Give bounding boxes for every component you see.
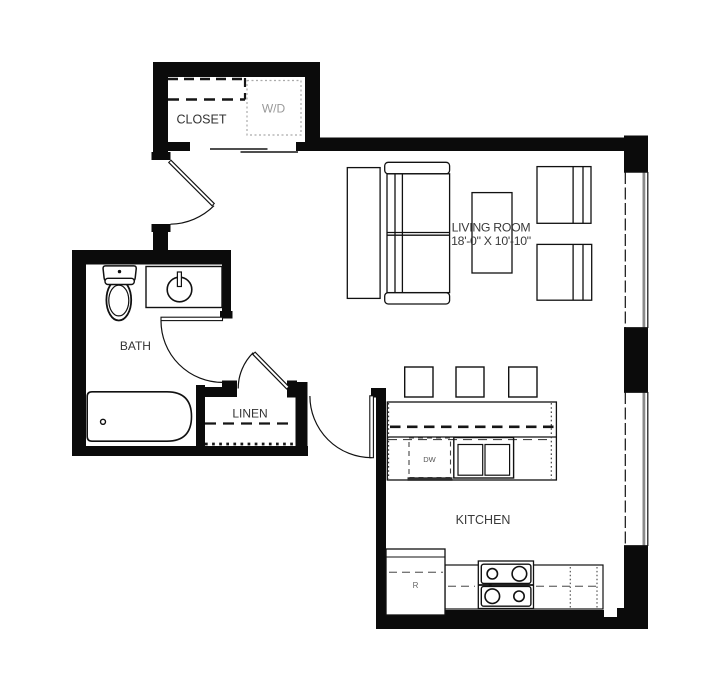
svg-text:KITCHEN: KITCHEN (456, 513, 511, 527)
svg-text:W/D: W/D (262, 102, 286, 116)
svg-text:CLOSET: CLOSET (176, 113, 226, 127)
svg-text:BATH: BATH (120, 339, 151, 353)
svg-text:LIVING ROOM: LIVING ROOM (452, 221, 531, 235)
svg-text:DW: DW (423, 455, 436, 464)
svg-text:R: R (413, 581, 419, 590)
svg-text:18'-0" X 10'-10": 18'-0" X 10'-10" (451, 234, 531, 248)
svg-text:LINEN: LINEN (232, 407, 267, 421)
